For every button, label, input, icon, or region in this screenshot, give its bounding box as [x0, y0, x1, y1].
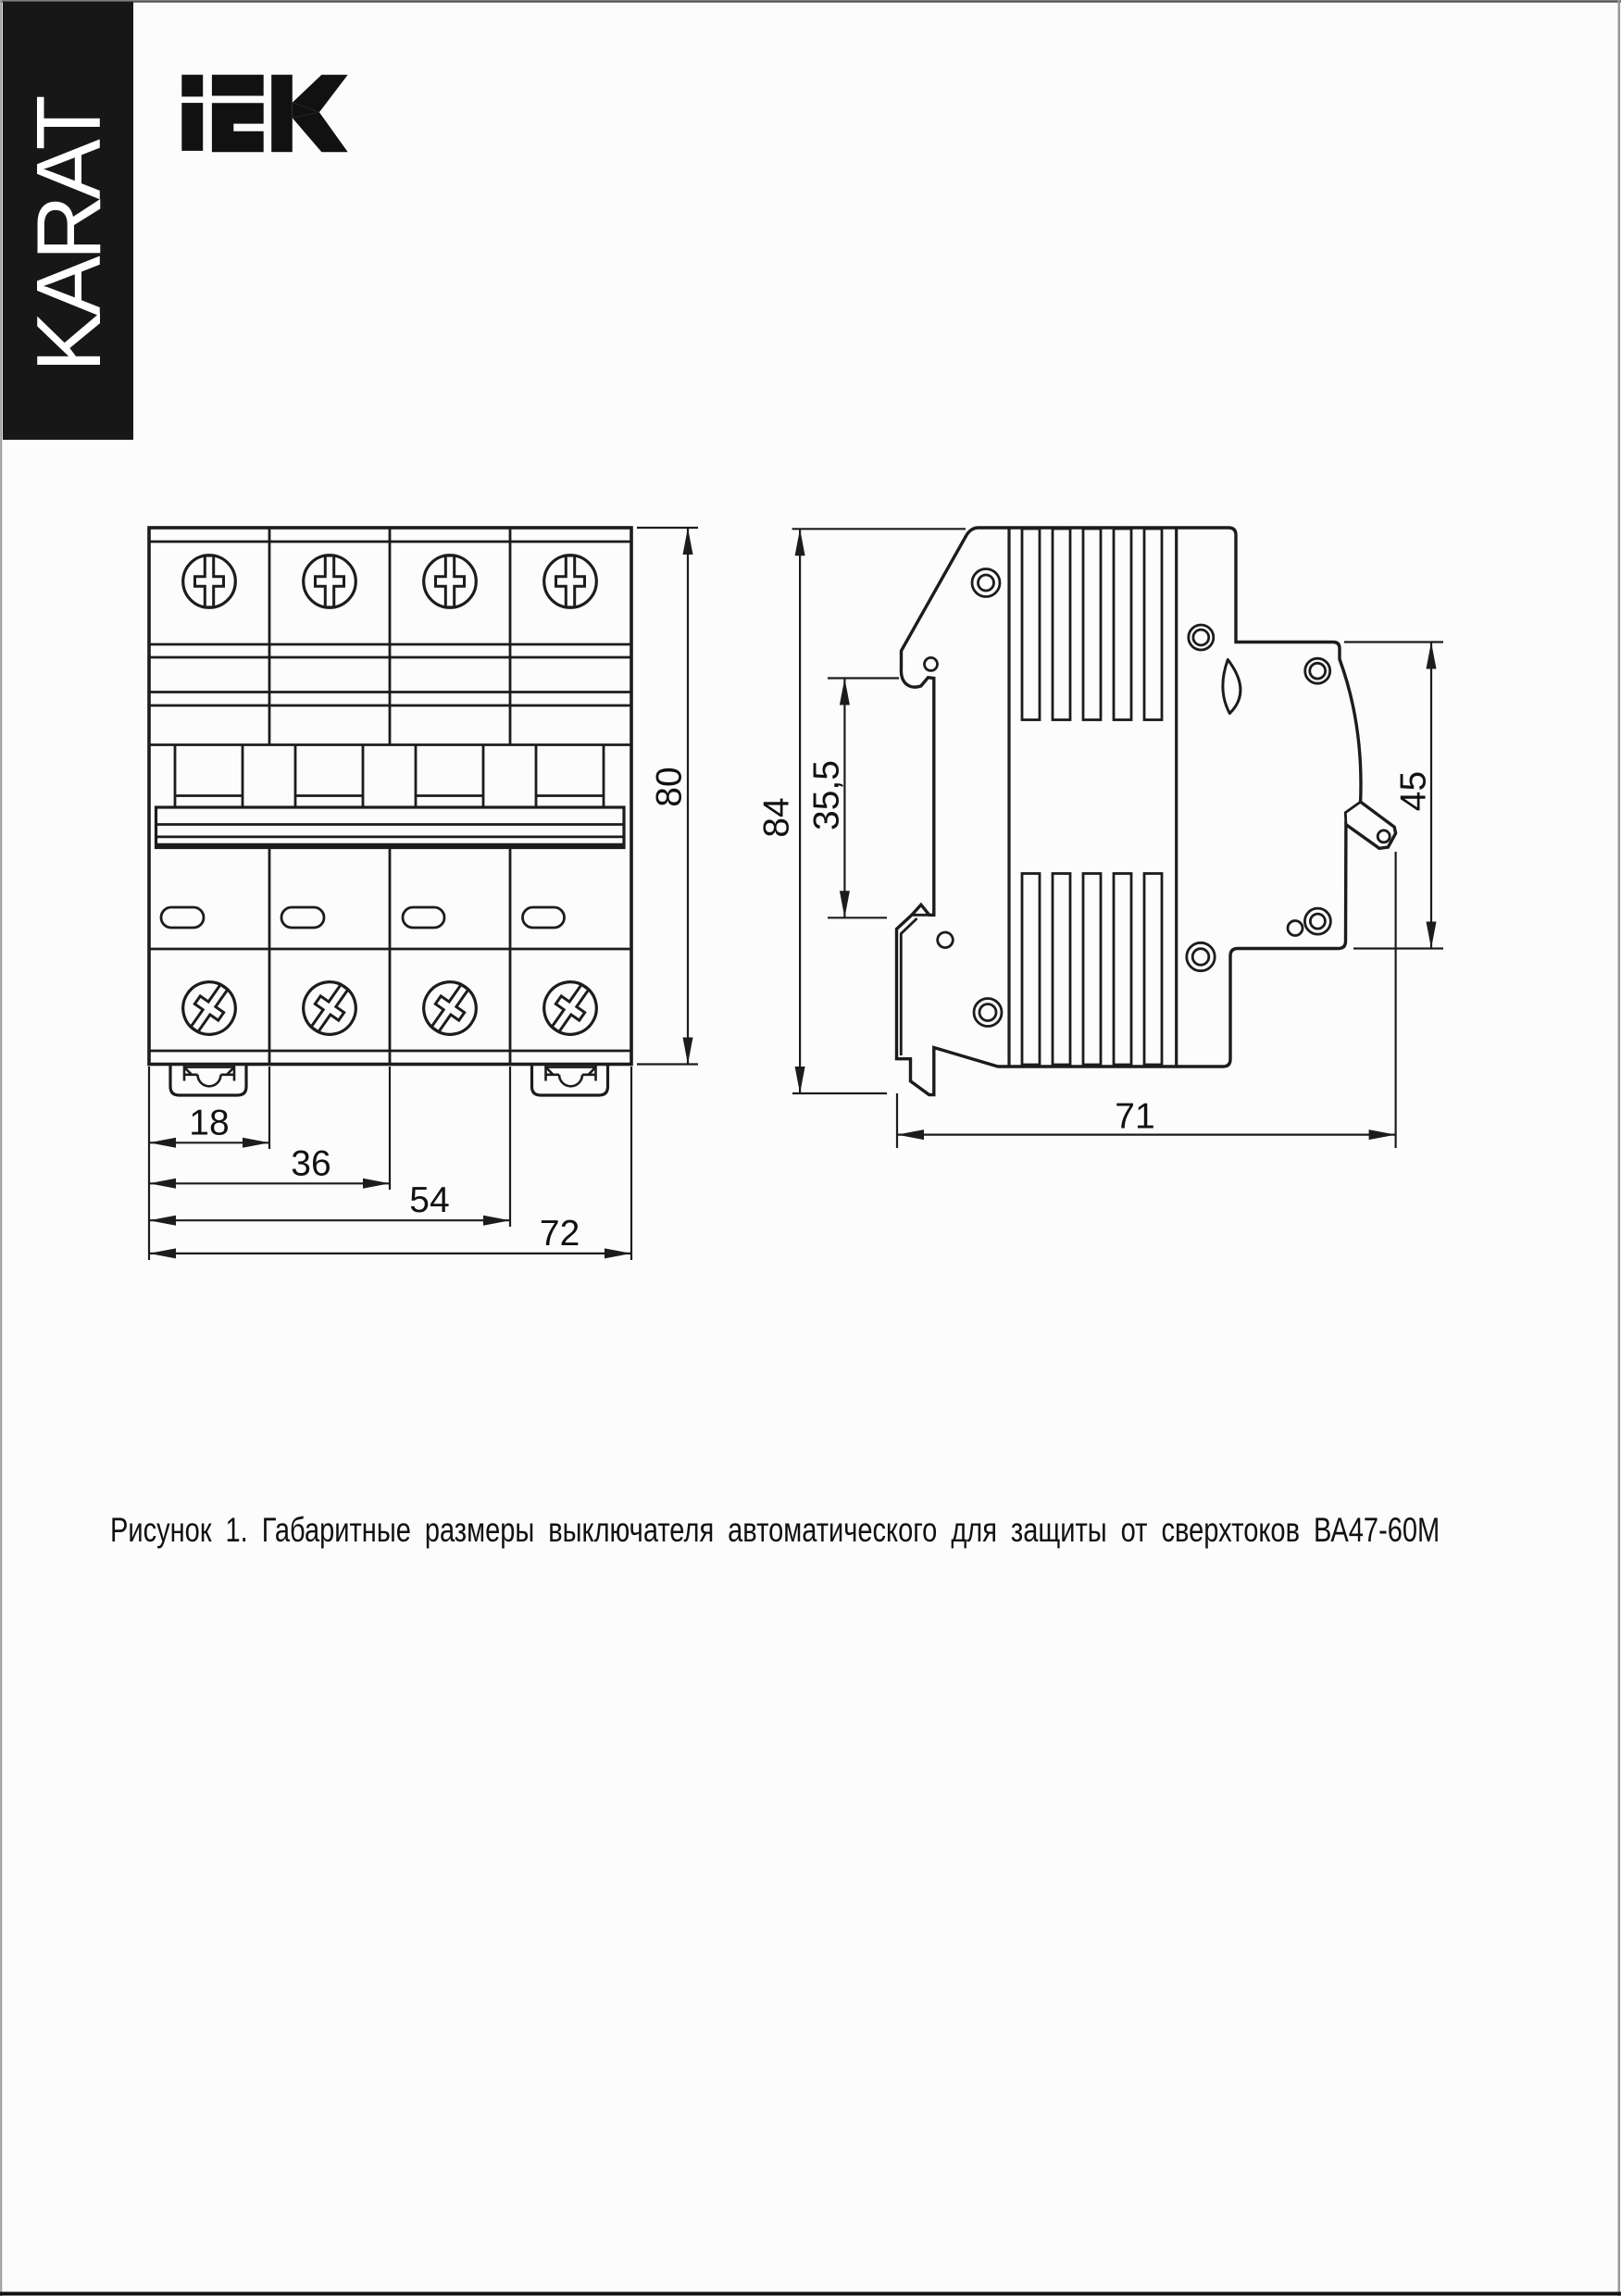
- svg-text:54: 54: [409, 1180, 449, 1220]
- svg-text:84: 84: [757, 797, 797, 837]
- svg-text:72: 72: [540, 1214, 580, 1254]
- svg-text:35,5: 35,5: [807, 760, 847, 830]
- svg-text:KARAT: KARAT: [18, 96, 119, 372]
- svg-text:36: 36: [291, 1143, 330, 1183]
- svg-text:45: 45: [1394, 771, 1434, 811]
- svg-text:80: 80: [650, 767, 690, 806]
- svg-text:71: 71: [1115, 1097, 1154, 1137]
- svg-text:18: 18: [189, 1103, 229, 1142]
